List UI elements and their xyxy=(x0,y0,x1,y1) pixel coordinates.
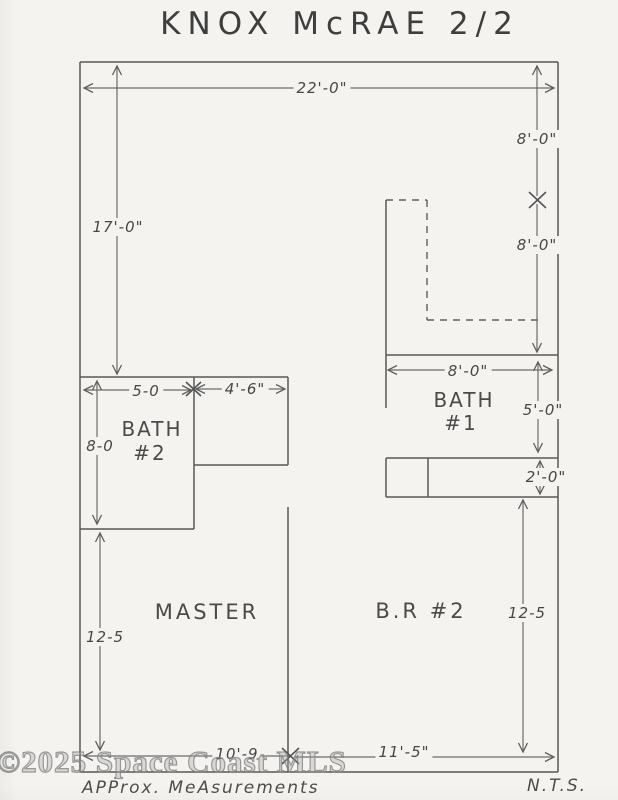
dim-left-height: 17'-0" xyxy=(89,218,146,236)
dim-right-upper: 8'-0" xyxy=(514,130,561,148)
floorplan-scan: KNOX McRAE 2/2 xyxy=(0,0,618,800)
dim-closet-width: 4'-6" xyxy=(222,380,269,398)
dim-master-height: 12-5 xyxy=(83,628,127,646)
room-label-bath2-line2: #2 xyxy=(133,441,166,465)
dim-top-width: 22'-0" xyxy=(293,79,350,97)
room-label-bath1-line1: BATH xyxy=(433,388,494,412)
nts-note: N.T.S. xyxy=(527,776,587,796)
dim-br2-width: 11'-5" xyxy=(375,743,432,761)
dim-bath1-height: 5'-0" xyxy=(520,401,567,419)
dimension-junction-marks xyxy=(186,192,546,764)
dim-master-width: 10'-9 xyxy=(212,745,261,763)
room-label-master: MASTER xyxy=(155,600,260,624)
floorplan-drawing xyxy=(0,0,618,800)
dim-vanity-depth: 2'-0" xyxy=(523,468,570,486)
dim-bath2-width: 5-0 xyxy=(129,382,163,400)
approx-note: APProx. MeAsurements xyxy=(82,778,320,798)
room-label-bath1-line2: #1 xyxy=(444,411,477,435)
plan-title: KNOX McRAE 2/2 xyxy=(130,6,550,50)
dashed-closet-outline xyxy=(386,200,540,320)
dim-br2-height: 12-5 xyxy=(505,604,549,622)
dim-bath1-width: 8'-0" xyxy=(445,362,492,380)
room-label-br2: B.R #2 xyxy=(375,599,466,623)
dim-right-lower: 8'-0" xyxy=(514,236,561,254)
room-label-bath2-line1: BATH xyxy=(121,417,182,441)
dim-bath2-height: 8-0 xyxy=(83,437,117,455)
